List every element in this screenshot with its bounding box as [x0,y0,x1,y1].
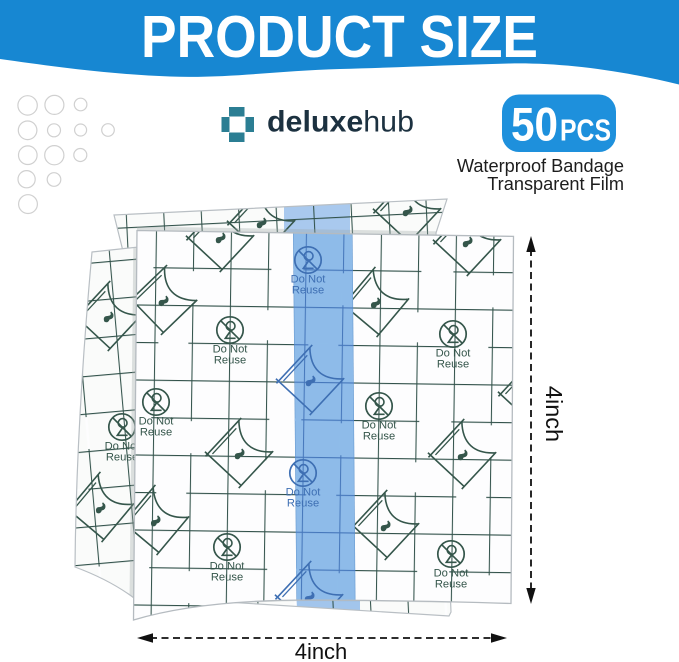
svg-text:Waterproof Bandage: Waterproof Bandage [457,156,624,176]
svg-text:4inch: 4inch [295,639,348,662]
svg-text:deluxehub: deluxehub [267,106,414,139]
svg-text:Transparent Film: Transparent Film [487,174,624,194]
svg-text:4inch: 4inch [541,386,567,442]
svg-text:PRODUCT SIZE: PRODUCT SIZE [141,4,538,70]
